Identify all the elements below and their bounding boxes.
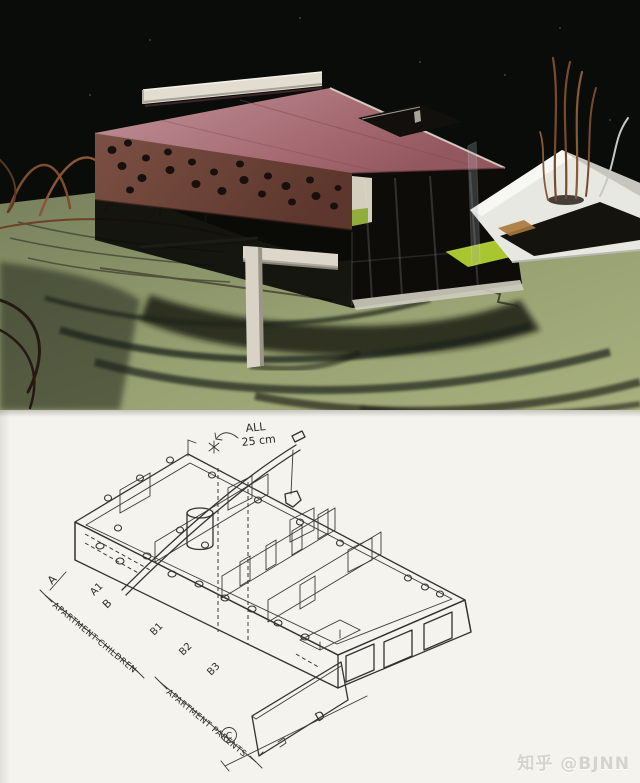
watermark: 知乎 @BJNN — [517, 749, 630, 774]
screenshot: ALL 25 cm A A1 B B1 B2 B3 C D APARTMENT-… — [0, 0, 640, 783]
marker-b: B — [100, 597, 115, 612]
sketch-canvas: ALL 25 cm A A1 B B1 B2 B3 C D APARTMENT-… — [0, 410, 640, 783]
cylinder — [187, 508, 213, 550]
marker-a: A — [45, 572, 60, 587]
beam-i-section — [292, 431, 305, 442]
lower-wall-slab — [252, 662, 348, 756]
paper-edge-shade — [0, 410, 10, 783]
model-photo-canvas — [0, 0, 640, 410]
interior-walls — [120, 473, 452, 682]
marker-b2: B2 — [177, 641, 194, 658]
label-apartment-parents: APARTMENT PARENTS — [164, 688, 248, 760]
label-apartment-children: APARTMENT-CHILDREN — [50, 601, 138, 676]
plumb-weight — [285, 491, 301, 507]
model-photo — [0, 0, 640, 410]
paper-top-shade — [0, 410, 640, 417]
marker-b3: B3 — [205, 661, 222, 678]
marker-b1: B1 — [148, 621, 165, 638]
axonometric-sketch: ALL 25 cm A A1 B B1 B2 B3 C D APARTMENT-… — [0, 410, 640, 783]
note-25cm: 25 cm — [241, 432, 276, 449]
marker-a1: A1 — [88, 581, 105, 598]
